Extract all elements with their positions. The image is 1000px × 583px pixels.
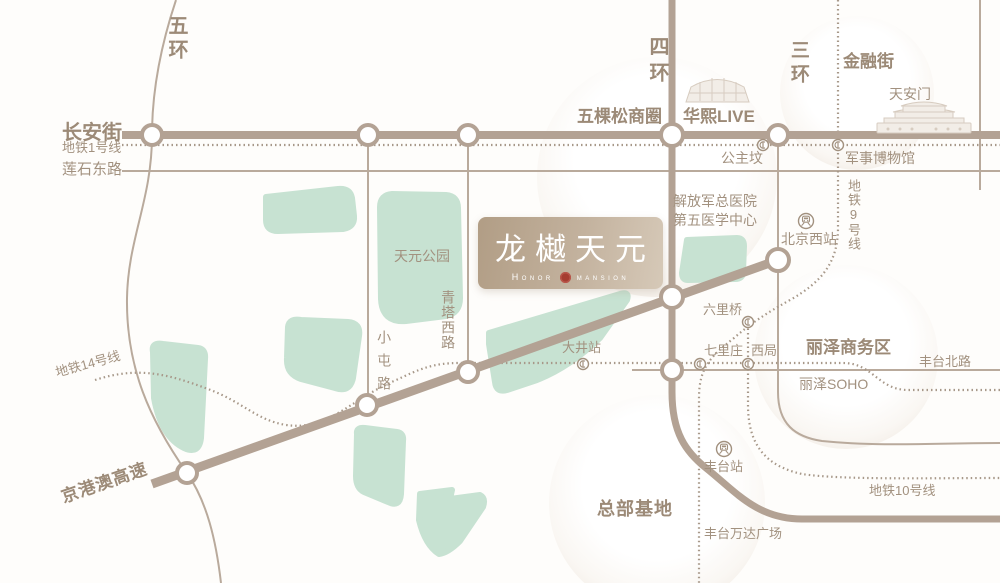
label-liuliqiao: 六里桥 bbox=[703, 303, 742, 318]
project-logo-subtitle: Honor mansion bbox=[512, 272, 630, 283]
label-beijing-west-station: 北京西站 bbox=[781, 231, 837, 247]
label-lianshidonglu: 莲石东路 bbox=[62, 161, 122, 178]
label-dajing-station: 大井站 bbox=[562, 341, 601, 356]
label-hospital-line1: 解放军总医院 bbox=[673, 192, 757, 211]
label-lize-soho: 丽泽SOHO bbox=[799, 376, 868, 392]
label-jinrongjie: 金融街 bbox=[843, 52, 894, 72]
label-gongzhufen: 公主坟 bbox=[721, 150, 763, 166]
label-wukesong: 五棵松商圈 bbox=[577, 107, 662, 127]
project-logo: 龙樾天元 Honor mansion bbox=[478, 217, 663, 289]
road-nodes bbox=[142, 124, 789, 483]
project-logo-title: 龙樾天元 bbox=[486, 224, 655, 269]
label-huaxi-live: 华熙LIVE bbox=[683, 107, 755, 127]
label-metro-line9: 地铁9号线 bbox=[845, 179, 860, 251]
railway-icon-fengtai bbox=[717, 442, 732, 457]
label-zongbu-jidi: 总部基地 bbox=[597, 499, 673, 520]
label-ring5: 五环 bbox=[164, 15, 187, 63]
park-block-1 bbox=[266, 189, 354, 231]
metro-icon-gongzhufen bbox=[758, 140, 769, 151]
project-logo-subtitle-right: mansion bbox=[577, 272, 630, 282]
tiananmen-gate-icon bbox=[877, 102, 971, 133]
park-blob-s2 bbox=[419, 490, 484, 554]
project-logo-subtitle-left: Honor bbox=[512, 272, 554, 282]
park-blob-w1 bbox=[153, 344, 205, 450]
label-lize-business: 丽泽商务区 bbox=[806, 338, 891, 358]
location-map: 五环 长安街 地铁1号线 莲石东路 四环 五棵松商圈 华熙LIVE 三环 金融街… bbox=[0, 0, 1000, 583]
metro-lines bbox=[95, 0, 1000, 583]
label-hospital-line2: 第五医学中心 bbox=[673, 211, 757, 230]
label-qingtaxilu: 青塔西路 bbox=[440, 290, 456, 350]
label-qilizhuang: 七里庄 bbox=[704, 344, 743, 359]
road-x778 bbox=[778, 135, 1000, 444]
label-metro-line10: 地铁10号线 bbox=[869, 484, 935, 499]
label-fengtai-station: 丰台站 bbox=[704, 460, 743, 475]
label-junshibowuguan: 军事博物馆 bbox=[845, 150, 915, 166]
label-tiananmen: 天安门 bbox=[889, 86, 931, 102]
label-tianyuan-park: 天元公园 bbox=[394, 248, 450, 264]
label-xiaotunlu: 小屯路 bbox=[376, 330, 392, 399]
seal-icon bbox=[560, 272, 571, 283]
label-ring4: 四环 bbox=[645, 36, 668, 88]
metro-icon-liuliqiao bbox=[743, 317, 754, 328]
label-fengtai-wanda: 丰台万达广场 bbox=[704, 527, 782, 542]
metro-icon-junshibowuguan bbox=[833, 140, 844, 151]
road-ring5 bbox=[127, 0, 221, 583]
metro-icon-dajing bbox=[578, 359, 589, 370]
park-blob-s1 bbox=[356, 428, 403, 504]
map-canvas bbox=[0, 0, 1000, 583]
label-hospital: 解放军总医院 第五医学中心 bbox=[673, 192, 757, 230]
park-blob-w2 bbox=[287, 320, 359, 390]
metro-icon-xiju bbox=[743, 359, 754, 370]
metro-icon-qilizhuang bbox=[695, 359, 706, 370]
label-fengtaibeilu: 丰台北路 bbox=[919, 355, 971, 370]
label-ring3: 三环 bbox=[787, 40, 809, 88]
label-xiju: 西局 bbox=[751, 344, 777, 359]
stadium-icon bbox=[686, 78, 749, 102]
label-metro-line1: 地铁1号线 bbox=[62, 141, 121, 156]
railway-icon-beijing-west bbox=[799, 214, 814, 229]
